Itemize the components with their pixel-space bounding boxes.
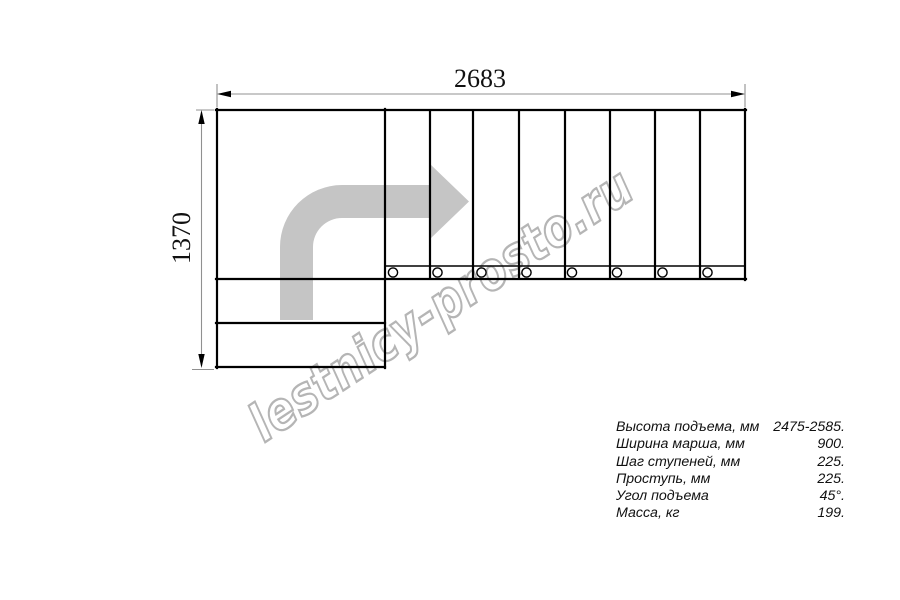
step-fastener-circle — [658, 268, 667, 277]
spec-row: Угол подъема 45°. — [616, 488, 845, 505]
spec-row: Шаг ступеней, мм 225. — [616, 454, 845, 471]
dimension-top: 2683 — [217, 64, 745, 107]
staircase-drawing-page: lestnicy-prosto.ru — [0, 0, 900, 600]
spec-value: 2475-2585. — [773, 419, 845, 436]
step-fastener-circles — [388, 268, 712, 277]
step-fastener-circle — [433, 268, 442, 277]
step-fastener-circle — [388, 268, 397, 277]
dimension-left: 1370 — [167, 110, 214, 370]
arrowhead-right — [731, 91, 745, 97]
spec-value: 199. — [817, 505, 845, 522]
arrowhead-down — [198, 354, 204, 368]
spec-row: Проступь, мм 225. — [616, 471, 845, 488]
dimension-width-label: 2683 — [454, 64, 506, 93]
step-fastener-circle — [522, 268, 531, 277]
spec-value: 900. — [817, 436, 845, 453]
arrowhead-left — [217, 91, 231, 97]
spec-value: 45°. — [820, 488, 845, 505]
spec-label: Проступь, мм — [616, 471, 710, 488]
spec-row: Высота подъема, мм 2475-2585. — [616, 419, 845, 436]
spec-label: Масса, кг — [616, 505, 680, 522]
step-fastener-circle — [703, 268, 712, 277]
spec-label: Высота подъема, мм — [616, 419, 759, 436]
step-fastener-circle — [477, 268, 486, 277]
step-fastener-circle — [612, 268, 621, 277]
spec-label: Ширина марша, мм — [616, 436, 745, 453]
spec-row: Ширина марша, мм 900. — [616, 436, 845, 453]
spec-label: Шаг ступеней, мм — [616, 454, 740, 471]
spec-row: Масса, кг 199. — [616, 505, 845, 522]
dimension-height-label: 1370 — [167, 212, 196, 264]
spec-value: 225. — [817, 454, 845, 471]
spec-label: Угол подъема — [616, 488, 709, 505]
spec-value: 225. — [817, 471, 845, 488]
step-fastener-circle — [567, 268, 576, 277]
arrowhead-up — [198, 110, 204, 124]
specs-table: Высота подъема, мм 2475-2585. Ширина мар… — [616, 419, 845, 523]
